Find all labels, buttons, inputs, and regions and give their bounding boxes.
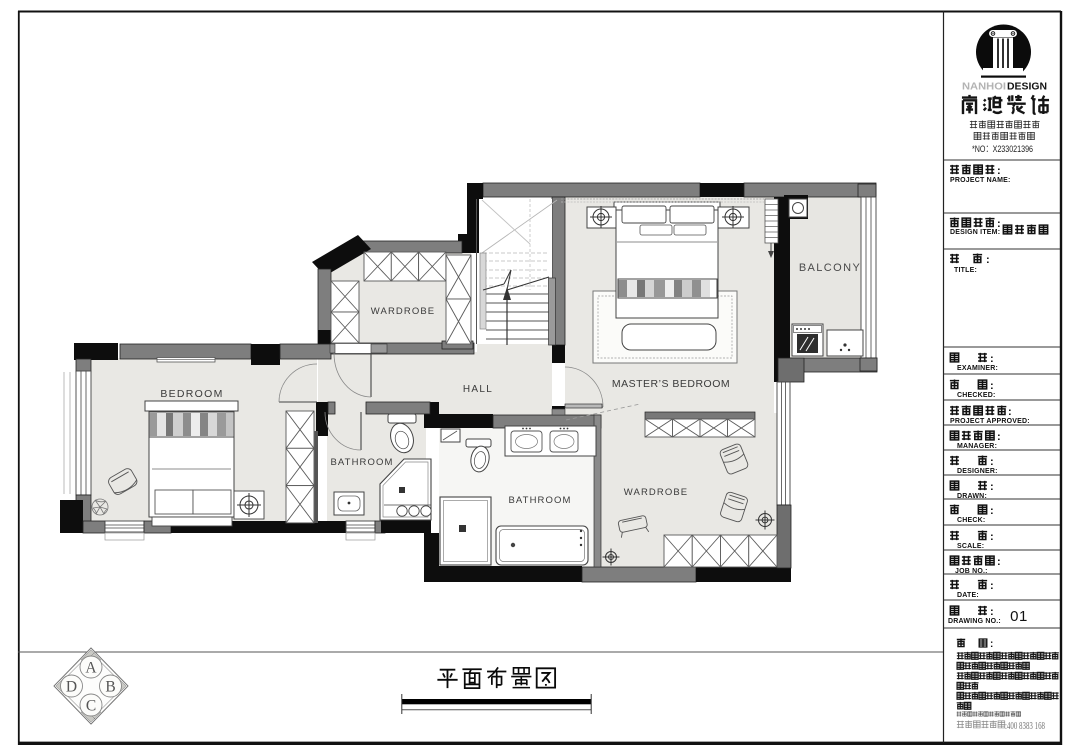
svg-text::: :: [997, 556, 1001, 568]
svg-text::: :: [990, 380, 994, 392]
svg-text:SCALE:: SCALE:: [957, 543, 984, 550]
svg-text:C: C: [86, 698, 96, 715]
svg-text:MASTER’S BEDROOM: MASTER’S BEDROOM: [612, 378, 730, 390]
svg-text:DESIGN ITEM:: DESIGN ITEM:: [950, 229, 1000, 236]
svg-text:BATHROOM: BATHROOM: [509, 495, 572, 506]
svg-text:*NO：X233021396: *NO：X233021396: [972, 144, 1033, 155]
svg-text::: :: [986, 254, 990, 266]
svg-text:JOB NO.:: JOB NO.:: [955, 568, 988, 575]
svg-text:DESIGNER:: DESIGNER:: [957, 468, 998, 475]
svg-text:TITLE:: TITLE:: [954, 267, 977, 274]
svg-text::: :: [990, 456, 994, 468]
svg-text::: :: [997, 431, 1001, 443]
svg-text:MANAGER:: MANAGER:: [957, 443, 997, 450]
svg-text:PROJECT NAME:: PROJECT NAME:: [950, 177, 1011, 184]
svg-text:NANHOI: NANHOI: [962, 81, 1006, 93]
svg-text::: :: [997, 165, 1001, 177]
svg-text:A: A: [85, 660, 97, 677]
svg-text::: :: [1008, 406, 1012, 418]
svg-text:CHECKED:: CHECKED:: [957, 392, 996, 399]
svg-text::: :: [990, 606, 994, 618]
svg-text:WARDROBE: WARDROBE: [371, 306, 435, 317]
svg-text:PROJECT APPROVED:: PROJECT APPROVED:: [950, 418, 1030, 425]
svg-text:01: 01: [1010, 608, 1028, 625]
svg-text:BATHROOM: BATHROOM: [331, 457, 394, 468]
svg-text::: :: [990, 639, 993, 650]
svg-text:BALCONY: BALCONY: [799, 262, 861, 274]
svg-text::: :: [990, 531, 994, 543]
svg-text::: :: [990, 580, 994, 592]
svg-text:DRAWING NO.:: DRAWING NO.:: [948, 618, 1001, 625]
svg-text:BEDROOM: BEDROOM: [160, 388, 223, 400]
svg-text:EXAMINER:: EXAMINER:: [957, 365, 998, 372]
svg-text:DESIGN: DESIGN: [1007, 81, 1047, 93]
svg-text:WARDROBE: WARDROBE: [624, 487, 688, 498]
svg-text:B: B: [105, 679, 115, 696]
svg-text::: :: [990, 353, 994, 365]
svg-text:HALL: HALL: [463, 384, 493, 395]
svg-text::: :: [990, 505, 994, 517]
svg-text:D: D: [66, 679, 77, 696]
svg-text::400 8383 168: :400 8383 168: [1005, 721, 1045, 732]
svg-text:DATE:: DATE:: [957, 592, 979, 599]
svg-text:DRAWN:: DRAWN:: [957, 493, 987, 500]
svg-text:CHECK:: CHECK:: [957, 517, 985, 524]
svg-text::: :: [990, 481, 994, 493]
